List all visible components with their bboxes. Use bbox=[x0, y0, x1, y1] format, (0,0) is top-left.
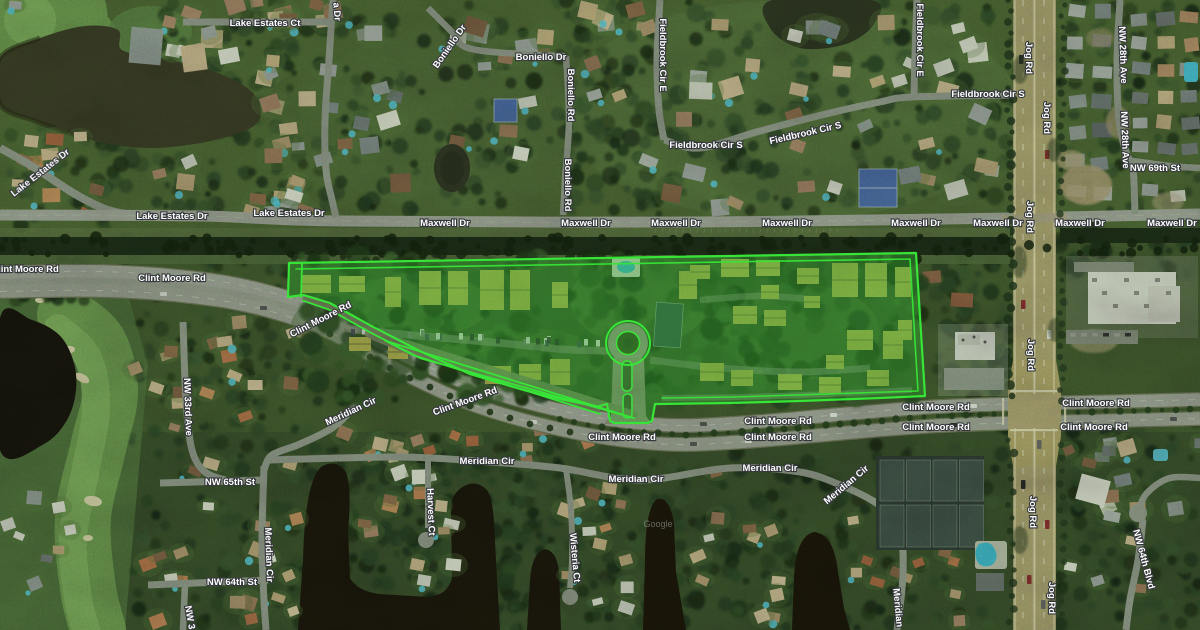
svg-text:Clint Moore Rd: Clint Moore Rd bbox=[902, 422, 970, 433]
svg-text:Maxwell Dr: Maxwell Dr bbox=[762, 218, 812, 229]
svg-text:Meridian Cir: Meridian Cir bbox=[262, 527, 275, 583]
svg-text:Fieldbrook Cir S: Fieldbrook Cir S bbox=[951, 89, 1024, 100]
svg-text:a Dr: a Dr bbox=[330, 2, 343, 22]
svg-text:Lake Estates Dr: Lake Estates Dr bbox=[136, 211, 208, 222]
svg-text:Jog Rd: Jog Rd bbox=[1023, 42, 1034, 74]
svg-text:NW 65th St: NW 65th St bbox=[205, 477, 256, 488]
svg-text:Jog Rd: Jog Rd bbox=[1025, 339, 1036, 371]
svg-text:Lake Estates Ct: Lake Estates Ct bbox=[230, 18, 302, 29]
svg-text:Maxwell Dr: Maxwell Dr bbox=[1055, 218, 1105, 229]
svg-text:Jog Rd: Jog Rd bbox=[1024, 201, 1035, 233]
svg-text:NW 28th Ave: NW 28th Ave bbox=[1116, 26, 1129, 84]
svg-text:Clint Moore Rd: Clint Moore Rd bbox=[0, 264, 59, 275]
svg-text:Meridian Cir: Meridian Cir bbox=[743, 463, 798, 474]
svg-text:Boniello Dr: Boniello Dr bbox=[516, 52, 567, 63]
svg-text:Meridian Cir: Meridian Cir bbox=[460, 456, 515, 467]
svg-text:Maxwell Dr: Maxwell Dr bbox=[1147, 218, 1197, 229]
svg-text:Boniello Rd: Boniello Rd bbox=[562, 159, 573, 212]
svg-text:Meridian Cir: Meridian Cir bbox=[609, 474, 664, 485]
svg-text:Clint Moore Rd: Clint Moore Rd bbox=[138, 273, 206, 284]
svg-text:Google: Google bbox=[643, 519, 672, 529]
svg-text:Harvest Ct: Harvest Ct bbox=[424, 488, 437, 537]
svg-text:Jog Rd: Jog Rd bbox=[1041, 102, 1052, 134]
svg-text:Clint Moore Rd: Clint Moore Rd bbox=[902, 402, 970, 413]
svg-text:Clint Moore Rd: Clint Moore Rd bbox=[744, 416, 812, 427]
svg-text:Maxwell Dr: Maxwell Dr bbox=[561, 218, 611, 229]
svg-text:NW 28th Ave: NW 28th Ave bbox=[1118, 111, 1131, 169]
svg-text:NW 69th St: NW 69th St bbox=[1130, 163, 1181, 174]
svg-text:Maxwell Dr: Maxwell Dr bbox=[891, 218, 941, 229]
svg-text:Fieldbrook Cir S: Fieldbrook Cir S bbox=[669, 140, 742, 151]
svg-text:Fieldbrook Cir E: Fieldbrook Cir E bbox=[657, 18, 668, 91]
svg-text:Jog Rd: Jog Rd bbox=[1027, 496, 1038, 528]
svg-text:Fieldbrook Cir E: Fieldbrook Cir E bbox=[914, 3, 925, 76]
svg-text:Jog Rd: Jog Rd bbox=[1046, 582, 1057, 614]
svg-text:Lake Estates Dr: Lake Estates Dr bbox=[253, 208, 325, 219]
svg-text:NW 64th St: NW 64th St bbox=[207, 577, 258, 588]
svg-text:Maxwell Dr: Maxwell Dr bbox=[973, 218, 1023, 229]
svg-text:NW 33rd Ave: NW 33rd Ave bbox=[181, 378, 194, 436]
svg-text:Maxwell Dr: Maxwell Dr bbox=[420, 218, 470, 229]
svg-text:Clint Moore Rd: Clint Moore Rd bbox=[1060, 422, 1128, 433]
svg-text:Boniello Rd: Boniello Rd bbox=[565, 69, 576, 122]
svg-text:Clint Moore Rd: Clint Moore Rd bbox=[588, 432, 656, 443]
svg-text:Maxwell Dr: Maxwell Dr bbox=[651, 218, 701, 229]
svg-text:Clint Moore Rd: Clint Moore Rd bbox=[744, 432, 812, 443]
svg-text:Clint Moore Rd: Clint Moore Rd bbox=[1062, 398, 1130, 409]
